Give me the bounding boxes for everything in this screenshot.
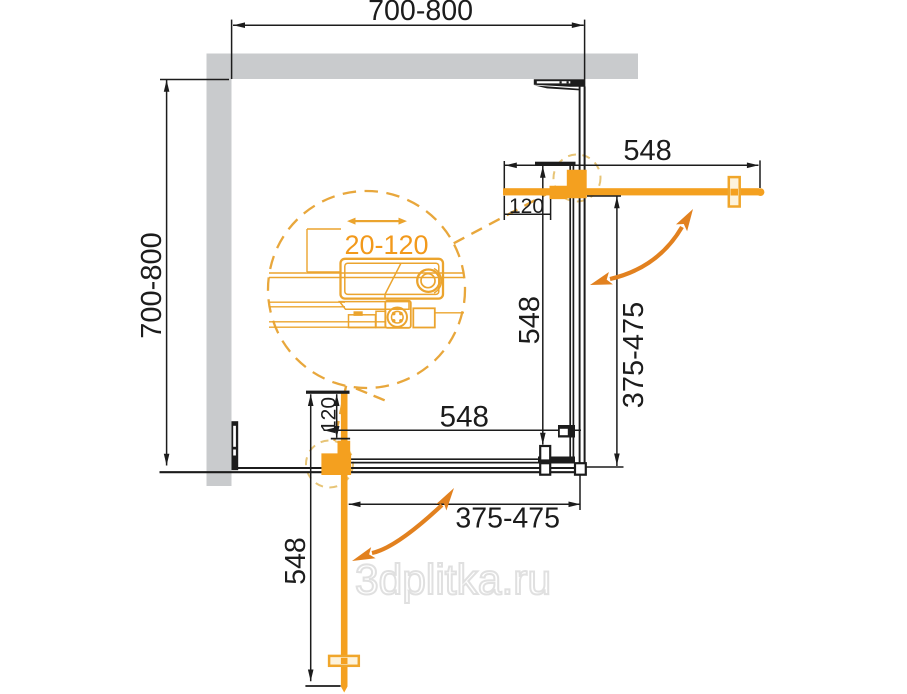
svg-text:120: 120 xyxy=(318,397,341,432)
svg-text:548: 548 xyxy=(623,135,671,167)
svg-text:700-800: 700-800 xyxy=(368,0,473,27)
svg-text:375-475: 375-475 xyxy=(455,503,560,535)
svg-text:20-120: 20-120 xyxy=(344,230,428,260)
svg-text:375-475: 375-475 xyxy=(618,302,650,408)
svg-text:120: 120 xyxy=(509,195,544,218)
svg-text:700-800: 700-800 xyxy=(136,232,168,338)
svg-text:548: 548 xyxy=(514,296,546,344)
svg-text:548: 548 xyxy=(440,401,489,434)
svg-text:3dplitka.ru: 3dplitka.ru xyxy=(355,557,551,604)
svg-text:548: 548 xyxy=(280,537,312,585)
